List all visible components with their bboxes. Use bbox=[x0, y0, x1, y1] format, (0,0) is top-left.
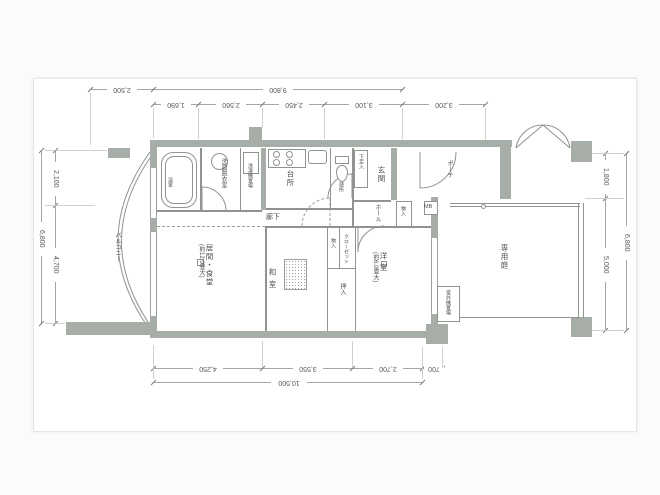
dim-right-5000: 5,000 bbox=[600, 248, 610, 282]
window-living-2 bbox=[150, 232, 157, 316]
ext-line bbox=[198, 108, 199, 139]
stove-burner-1-icon bbox=[273, 151, 280, 158]
living-dining-label: 居間・食堂 bbox=[205, 244, 214, 287]
stove-burner-4-icon bbox=[286, 159, 293, 166]
dim-bottom-10500: 10,500 bbox=[271, 378, 307, 387]
ext-line bbox=[45, 150, 107, 151]
tokonoma-alcove bbox=[284, 259, 307, 290]
partition-toilet-left bbox=[330, 148, 331, 208]
western-room-label: 洋室 bbox=[379, 252, 388, 282]
western-room-size-label: (約6.0畳大) bbox=[370, 252, 379, 282]
dim-top-2560: 2,560 bbox=[216, 100, 246, 109]
bathroom-label: 浴室 bbox=[167, 177, 173, 187]
garden-bottom-line bbox=[450, 317, 580, 318]
partition-storage-right bbox=[355, 226, 356, 331]
toilet-label: 便所 bbox=[338, 182, 344, 192]
partition-living-japanese bbox=[265, 226, 267, 331]
ext-line bbox=[262, 341, 263, 368]
ext-line bbox=[262, 108, 263, 127]
partition-kitchen-bottom bbox=[266, 208, 352, 210]
shoe-box-label: 下足入 bbox=[358, 154, 364, 169]
garden-marker-icon bbox=[481, 204, 486, 209]
western-room-label-group: (約6.0畳大) 洋室 bbox=[370, 252, 388, 282]
partition-storage-left bbox=[327, 226, 328, 331]
dim-top-3100: 3,100 bbox=[349, 100, 379, 109]
private-garden-label: 専用庭 bbox=[500, 244, 509, 270]
pillar-garden-bottom bbox=[571, 317, 592, 337]
hall-label: ホール bbox=[372, 204, 381, 222]
wall-kitchen-divider bbox=[261, 148, 266, 210]
partition-washroom-laundry bbox=[240, 148, 241, 210]
oshiire-label: 押入 bbox=[337, 283, 346, 295]
dim-top-2450: 2,450 bbox=[279, 100, 309, 109]
ext-line bbox=[324, 108, 325, 139]
window-living-1 bbox=[150, 168, 157, 218]
ext-line bbox=[485, 108, 486, 140]
entrance-label: 玄関 bbox=[377, 166, 386, 183]
living-dining-size-label: (約12.0畳大) bbox=[196, 244, 205, 287]
dim-right-1800: 1,800 bbox=[600, 160, 610, 194]
floor-plan-sheet bbox=[33, 78, 637, 432]
wall-balcony-bottom-wing bbox=[66, 322, 150, 335]
ext-line bbox=[422, 347, 423, 379]
ext-line bbox=[442, 347, 443, 368]
stove-burner-3-icon bbox=[273, 159, 280, 166]
ext-line bbox=[592, 153, 624, 154]
ext-line bbox=[352, 341, 353, 368]
side-storage-label: 物入 bbox=[330, 238, 336, 248]
ext-line bbox=[592, 330, 624, 331]
sliding-door-living-dashed bbox=[157, 226, 265, 227]
ext-line bbox=[402, 108, 403, 139]
garden-top-line-1 bbox=[450, 203, 580, 204]
garden-right-line-2 bbox=[583, 203, 584, 318]
toilet-tank-icon bbox=[335, 156, 349, 164]
dim-left-2100: 2,100 bbox=[50, 162, 60, 196]
dim-top-9800: 9,800 bbox=[263, 85, 293, 94]
ext-line bbox=[153, 345, 154, 379]
partition-entrance-step bbox=[352, 200, 391, 202]
dim-left-4700: 4,700 bbox=[50, 248, 60, 282]
dim-left-6800: 6,800 bbox=[36, 222, 46, 256]
dim-bottom-700: 700 bbox=[424, 364, 444, 373]
garden-top-line-2 bbox=[450, 206, 580, 207]
partition-waterarea-bottom bbox=[157, 210, 262, 212]
outdoor-unit-label: 室外機置場 bbox=[445, 290, 451, 315]
ext-line bbox=[585, 198, 624, 199]
dim-bottom-3550: 3,550 bbox=[293, 364, 323, 373]
ext-line bbox=[45, 205, 95, 206]
closet-label: クローゼット bbox=[343, 234, 349, 264]
balcony-label: バルコニー bbox=[112, 232, 121, 262]
porch-label: ポーチ bbox=[444, 160, 453, 178]
living-dining-label-group: (約12.0畳大) 居間・食堂 bbox=[196, 244, 214, 287]
wall-balcony-top-stub bbox=[108, 148, 130, 158]
washroom-label: 洗面脱衣室 bbox=[218, 158, 227, 188]
dim-top-2500: 2,500 bbox=[107, 85, 137, 94]
wall-bottom bbox=[150, 331, 448, 338]
ext-line bbox=[90, 93, 91, 145]
wall-top-main bbox=[150, 140, 456, 147]
dim-top-1690: 1,690 bbox=[161, 100, 191, 109]
partition-storage-split bbox=[327, 268, 356, 269]
japanese-room-label: 和室 bbox=[268, 268, 277, 293]
ext-line bbox=[45, 323, 65, 324]
entrance-storage-label: 物入 bbox=[400, 206, 406, 216]
laundry-label: 洗濯機置場 bbox=[247, 163, 253, 188]
ext-line bbox=[153, 108, 154, 138]
stove-burner-2-icon bbox=[286, 151, 293, 158]
scanned-floor-plan-page: バルコニー (約12.0畳大) 居間・食堂 和室 (約6.0畳大) 洋室 台所 … bbox=[0, 0, 660, 495]
dim-top-3200: 3,200 bbox=[429, 100, 459, 109]
wall-entrance-right bbox=[391, 148, 397, 200]
partition-closet-split bbox=[339, 226, 340, 268]
dim-right-6800: 6,800 bbox=[621, 226, 631, 260]
partition-bath-washroom bbox=[200, 148, 202, 210]
garden-right-line-1 bbox=[578, 203, 579, 318]
corridor-label: 廊下 bbox=[266, 212, 280, 222]
dim-bottom-2700: 2,700 bbox=[373, 364, 403, 373]
wall-porch-right bbox=[500, 143, 511, 199]
dim-bottom-4250: 4,250 bbox=[193, 364, 223, 373]
kitchen-sink-icon bbox=[308, 150, 327, 164]
meter-box-label: MB bbox=[424, 204, 432, 210]
wall-top-stub bbox=[249, 127, 262, 141]
kitchen-label: 台所 bbox=[286, 170, 295, 187]
pillar-top-right bbox=[571, 141, 592, 162]
